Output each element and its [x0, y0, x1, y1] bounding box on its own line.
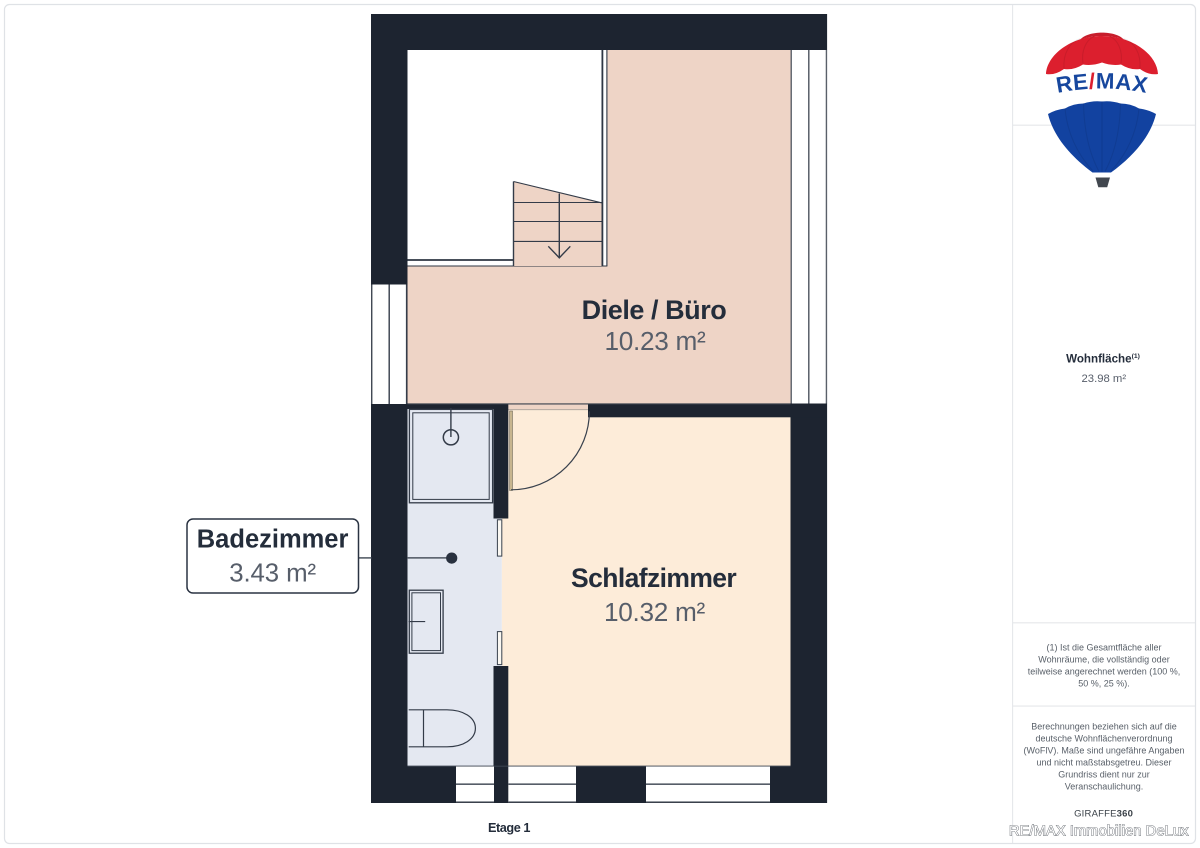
- svg-text:10.23 m²: 10.23 m²: [605, 326, 707, 356]
- svg-text:23.98 m²: 23.98 m²: [1082, 373, 1127, 385]
- svg-text:Etage 1: Etage 1: [488, 821, 530, 835]
- svg-text:RE/MAX: RE/MAX: [1054, 68, 1150, 97]
- svg-text:Wohnräume, die vollständig ode: Wohnräume, die vollständig oder: [1038, 654, 1169, 664]
- svg-text:deutsche Wohnflächenverordnung: deutsche Wohnflächenverordnung: [1036, 734, 1173, 744]
- svg-text:Veranschaulichung.: Veranschaulichung.: [1065, 782, 1144, 792]
- svg-text:(1) Ist die Gesamtfläche aller: (1) Ist die Gesamtfläche aller: [1046, 642, 1161, 652]
- svg-text:und nicht maßstabsgetreu. Dies: und nicht maßstabsgetreu. Dieser: [1036, 758, 1171, 768]
- svg-text:teilweise angerechnet werden (: teilweise angerechnet werden (100 %,: [1028, 666, 1181, 676]
- svg-text:RE/MAX Immobilien DeLux: RE/MAX Immobilien DeLux: [1009, 824, 1189, 840]
- svg-text:50 %, 25 %).: 50 %, 25 %).: [1078, 678, 1130, 688]
- svg-text:10.32 m²: 10.32 m²: [604, 597, 706, 627]
- svg-text:Diele / Büro: Diele / Büro: [582, 295, 727, 325]
- svg-text:Wohnfläche(1): Wohnfläche(1): [1066, 353, 1140, 366]
- svg-text:Berechnungen beziehen sich auf: Berechnungen beziehen sich auf die: [1031, 722, 1177, 732]
- svg-text:Badezimmer: Badezimmer: [197, 525, 349, 553]
- svg-text:3.43 m²: 3.43 m²: [229, 560, 316, 588]
- svg-text:(WoFlV). Maße sind ungefähre A: (WoFlV). Maße sind ungefähre Angaben: [1024, 746, 1185, 756]
- svg-text:Schlafzimmer: Schlafzimmer: [571, 563, 736, 593]
- svg-text:GIRAFFE360: GIRAFFE360: [1074, 809, 1133, 820]
- svg-text:Grundriss dient nur zur: Grundriss dient nur zur: [1058, 770, 1150, 780]
